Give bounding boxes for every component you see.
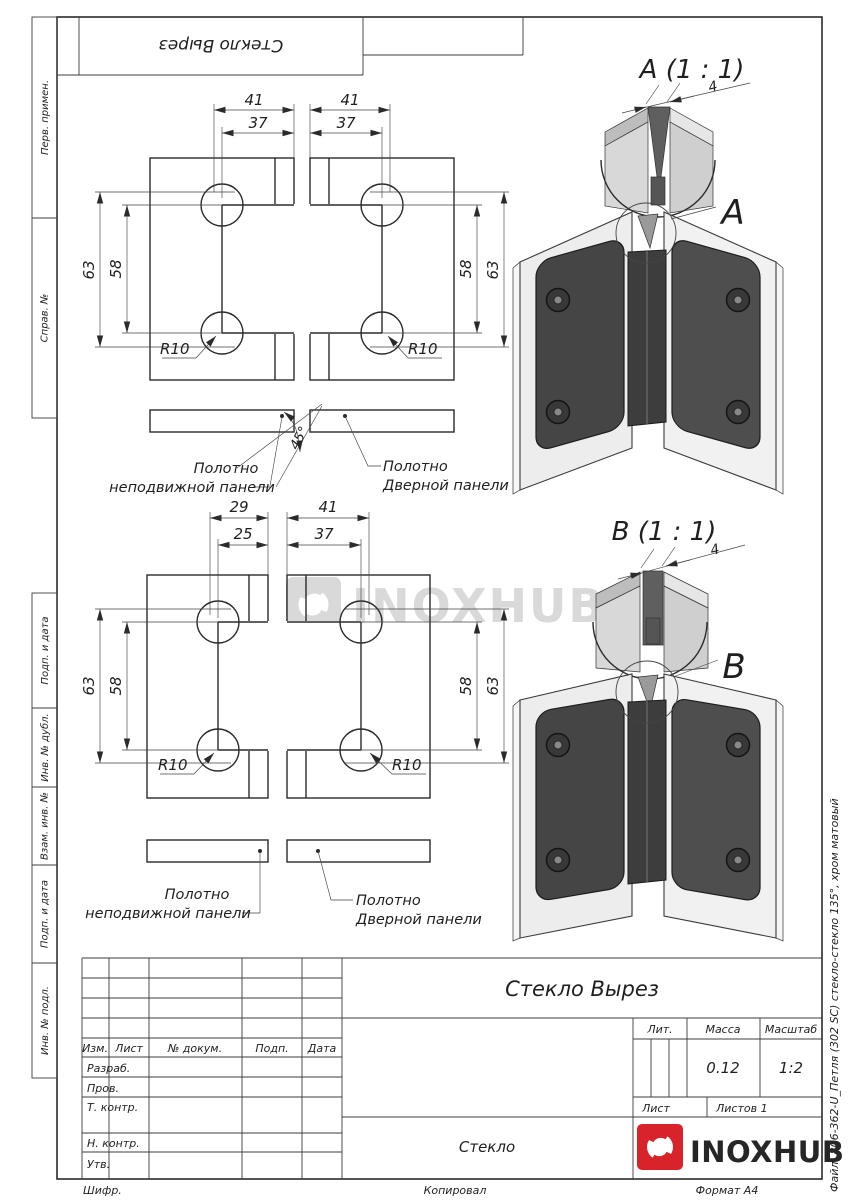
col-izm: Изм. <box>82 1042 108 1055</box>
lit-label: Лит. <box>646 1023 672 1036</box>
margin-label-sprav: Справ. № <box>40 294 51 343</box>
fixed-panel-label-bottom-line1: Полотно <box>165 887 230 903</box>
dim-37-bottom: 37 <box>314 525 334 543</box>
section-strips-bottom: Полотно неподвижной панели Полотно Дверн… <box>85 840 482 928</box>
door-panel-label-line1: Полотно <box>383 459 448 475</box>
detail-a-title: A (1 : 1) <box>638 55 745 85</box>
mirrored-doc-title: Стекло Вырез <box>159 35 284 55</box>
dim-41-right: 41 <box>340 91 359 109</box>
hinge-3d-b: B <box>513 647 783 941</box>
footer-format: Формат А4 <box>696 1184 759 1197</box>
dim-r10-right: R10 <box>408 340 438 358</box>
dim-r10-bottom-left: R10 <box>158 756 188 774</box>
margin-label-podp-data-2: Подп. и дата <box>40 880 51 948</box>
dim-25: 25 <box>233 525 252 543</box>
door-panel-label-bottom-line2: Дверной панели <box>355 912 482 928</box>
dim-41-left: 41 <box>244 91 263 109</box>
view-bottom: 29 25 41 37 63 58 58 63 R10 R10 Полотно <box>80 498 509 928</box>
view-top: 41 37 41 37 63 58 58 63 R10 R10 <box>80 91 509 496</box>
callout-a: A <box>719 193 744 233</box>
dim-37-right: 37 <box>336 114 356 132</box>
row-nkontr: Н. контр. <box>87 1137 140 1150</box>
section-strips-top: 45° Полотно неподвижной панели Полотно Д… <box>109 404 509 496</box>
dim-58-right: 58 <box>457 259 475 278</box>
margin-label-inv-dubl: Инв. № дубл. <box>39 713 51 781</box>
fixed-panel-label-line1: Полотно <box>194 461 259 477</box>
row-utv: Утв. <box>87 1158 110 1171</box>
detail-b-title: B (1 : 1) <box>612 517 717 547</box>
watermark-text: INOXHUB <box>352 579 605 633</box>
footer-shifr: Шифр. <box>83 1184 122 1197</box>
material: Стекло <box>459 1138 515 1156</box>
door-panel-label-line2: Дверной панели <box>382 478 509 494</box>
dim-41-bottom: 41 <box>318 498 337 516</box>
sheet-label: Лист <box>641 1102 670 1115</box>
file-annotation: Файл: 806-362-U_Петля (302 SC) стекло-ст… <box>828 798 841 1192</box>
scale-value: 1:2 <box>779 1059 803 1077</box>
dim-37-left: 37 <box>248 114 268 132</box>
col-podp: Подп. <box>255 1042 288 1055</box>
row-prov: Пров. <box>87 1082 119 1095</box>
left-margin: Перв. примен. Справ. № Подп. и дата Инв.… <box>32 17 57 1078</box>
mass-label: Масса <box>705 1023 740 1036</box>
dim-r10-bottom-right: R10 <box>392 756 422 774</box>
top-stamp: Стекло Вырез <box>57 17 523 75</box>
dim-63-bottom-left: 63 <box>80 676 98 695</box>
sheets-label: Листов 1 <box>715 1102 768 1115</box>
fixed-panel-label-line2: неподвижной панели <box>109 480 275 496</box>
dim-58-left: 58 <box>107 259 125 278</box>
fixed-panel-label-bottom-line2: неподвижной панели <box>85 906 251 922</box>
footer: Шифр. Копировал Формат А4 <box>83 1184 758 1197</box>
scale-label: Масштаб <box>765 1023 817 1036</box>
dim-63-left: 63 <box>80 260 98 279</box>
col-list: Лист <box>114 1042 143 1055</box>
dim-29: 29 <box>229 498 248 516</box>
dim-58-bottom-right: 58 <box>457 676 475 695</box>
hinge-3d-a: A <box>513 193 783 494</box>
inoxhub-logo-text: INOXHUB <box>690 1135 844 1169</box>
doc-title: Стекло Вырез <box>505 977 659 1001</box>
callout-b: B <box>722 647 745 687</box>
row-razrab: Разраб. <box>87 1062 130 1075</box>
title-block: Изм. Лист № докум. Подп. Дата Разраб. Пр… <box>82 958 844 1179</box>
footer-kopiroval: Копировал <box>424 1184 487 1197</box>
col-data: Дата <box>307 1042 337 1055</box>
margin-label-perv-primen: Перв. примен. <box>40 80 51 155</box>
dim-63-bottom-right: 63 <box>484 676 502 695</box>
dim-58-bottom-left: 58 <box>107 676 125 695</box>
mass-value: 0.12 <box>706 1059 739 1077</box>
margin-label-podp-data-1: Подп. и дата <box>40 616 51 684</box>
right-margin: Файл: 806-362-U_Петля (302 SC) стекло-ст… <box>828 798 841 1192</box>
detail-a: A (1 : 1) 4 <box>513 55 783 494</box>
detail-b-gap-dim: 4 <box>709 541 722 559</box>
drawing-canvas: INOXHUB Стекло Вырез Перв. примен. Справ… <box>0 0 848 1200</box>
margin-label-vzam-inv: Взам. инв. № <box>40 792 51 860</box>
door-panel-label-bottom-line1: Полотно <box>356 893 421 909</box>
inoxhub-logo: INOXHUB <box>637 1124 844 1170</box>
drawing-sheet: INOXHUB Стекло Вырез Перв. примен. Справ… <box>0 0 848 1200</box>
dim-r10-left: R10 <box>160 340 190 358</box>
col-ndokum: № докум. <box>167 1042 222 1055</box>
margin-label-inv-podl: Инв. № подл. <box>40 986 51 1055</box>
row-tkontr: Т. контр. <box>87 1101 138 1114</box>
dim-63-right: 63 <box>484 260 502 279</box>
dim-45deg: 45° <box>287 424 312 453</box>
